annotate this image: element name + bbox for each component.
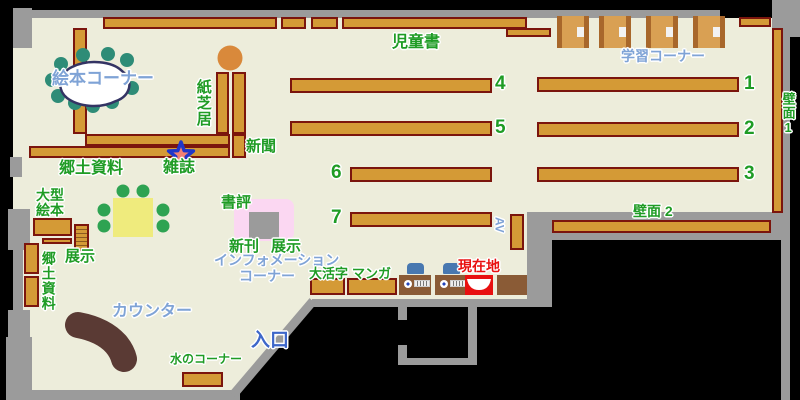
large-picture-book-shelf-thin xyxy=(42,238,72,244)
reading-table xyxy=(113,198,153,237)
study-chair-4 xyxy=(713,27,720,37)
label-exhibit-upper: 展示 xyxy=(65,249,95,265)
shelf-number-3: 3 xyxy=(744,164,755,184)
stair-room-wall-right xyxy=(468,307,477,365)
shelf-2 xyxy=(537,122,739,137)
av-shelf xyxy=(510,214,524,250)
wall-2-shelf xyxy=(552,220,771,233)
label-av: AV xyxy=(493,217,506,233)
study-chair-1 xyxy=(577,27,584,37)
study-desk-3 xyxy=(646,16,678,48)
kamishibai-shelf-left xyxy=(216,72,229,134)
label-wall-1: 壁面1 xyxy=(781,92,795,136)
current-location-box xyxy=(465,275,493,295)
library-floor-map: 絵本コーナー 紙芝居 新聞 雑誌 郷土資料 児童書 学習コーナー 壁面1 壁面 … xyxy=(0,0,800,400)
label-newspaper: 新聞 xyxy=(246,139,276,155)
label-information-line2: コーナー xyxy=(239,269,295,284)
kamishibai-shelf-right xyxy=(232,72,246,134)
label-kamishibai: 紙芝居 xyxy=(195,79,211,127)
water-corner-shelf xyxy=(182,372,223,387)
shelf-7 xyxy=(350,212,492,227)
shelf-5 xyxy=(290,121,492,136)
magazine-shelf-lower xyxy=(29,146,230,158)
shelf-3 xyxy=(537,167,739,182)
shelf-number-1: 1 xyxy=(744,74,755,94)
pc-keyboard-2 xyxy=(450,280,466,287)
magazine-shelf-upper xyxy=(85,134,230,146)
local-materials-shelf-1 xyxy=(24,243,39,274)
label-magazines: 雑誌 xyxy=(163,160,195,177)
shelf-number-6: 6 xyxy=(331,163,342,183)
study-desk-4 xyxy=(693,16,725,48)
wall-left-1 xyxy=(10,157,22,177)
label-water-corner: 水のコーナー xyxy=(170,353,242,366)
shelf-6 xyxy=(350,167,492,182)
label-picture-book-corner: 絵本コーナー xyxy=(52,70,154,88)
study-corner-side-shelf xyxy=(506,28,551,37)
wall-bottom-center xyxy=(312,299,552,307)
label-local-materials: 郷土資料 xyxy=(59,161,123,178)
stair-room-wall-left-upper xyxy=(398,307,407,320)
label-wall-2: 壁面 2 xyxy=(633,204,673,219)
wall-bottom-left xyxy=(6,390,240,400)
pc-mouse-1 xyxy=(404,280,412,288)
study-desk-1 xyxy=(557,16,589,48)
newspaper-shelf xyxy=(232,134,246,158)
label-large-print: 大活字 xyxy=(309,267,348,281)
exhibit-shelf xyxy=(74,224,89,251)
shelf-1 xyxy=(537,77,739,92)
label-book-review: 書評 xyxy=(221,195,251,211)
top-wall-shelf-2 xyxy=(281,17,306,29)
shelf-number-7: 7 xyxy=(331,208,342,228)
shelf-number-2: 2 xyxy=(744,119,755,139)
shelf-number-4: 4 xyxy=(495,74,506,94)
counter-desk xyxy=(78,325,124,359)
top-right-corner-shelf xyxy=(739,17,771,27)
stair-room-wall-bottom xyxy=(398,358,477,365)
wall-right-lower xyxy=(781,240,790,400)
information-desk xyxy=(249,212,279,239)
top-wall-shelf-4 xyxy=(342,17,527,29)
wall-left-3 xyxy=(13,250,23,310)
label-study-corner: 学習コーナー xyxy=(621,49,705,64)
pc-chair-1 xyxy=(407,263,424,274)
label-local-materials-vertical: 郷土資料 xyxy=(41,251,56,311)
label-large-picture-books: 大型 絵本 xyxy=(36,188,64,217)
label-counter: カウンター xyxy=(112,304,192,321)
label-current-location: 現在地 xyxy=(458,259,500,274)
label-children-books: 児童書 xyxy=(392,35,440,52)
side-bench xyxy=(497,275,527,295)
label-entrance: 入口 xyxy=(251,331,289,351)
top-wall-shelf-3 xyxy=(311,17,338,29)
study-chair-2 xyxy=(619,27,626,37)
pc-keyboard-1 xyxy=(414,280,430,287)
wall-top-left xyxy=(13,8,32,48)
pc-mouse-2 xyxy=(440,280,448,288)
label-large-picture-books-line2: 絵本 xyxy=(36,202,64,218)
wall-bottom-right-vertical xyxy=(527,212,552,307)
label-manga: マンガ xyxy=(352,267,391,281)
local-materials-shelf-2 xyxy=(24,276,39,307)
study-desk-2 xyxy=(599,16,631,48)
wall-left-5 xyxy=(6,337,32,390)
top-wall-shelf-1 xyxy=(103,17,277,29)
shelf-4 xyxy=(290,78,492,93)
label-large-picture-books-line1: 大型 xyxy=(36,187,64,203)
floor-left-strip xyxy=(13,48,32,212)
large-picture-book-shelf xyxy=(33,218,72,236)
shelf-number-5: 5 xyxy=(495,118,506,138)
study-chair-3 xyxy=(666,27,673,37)
